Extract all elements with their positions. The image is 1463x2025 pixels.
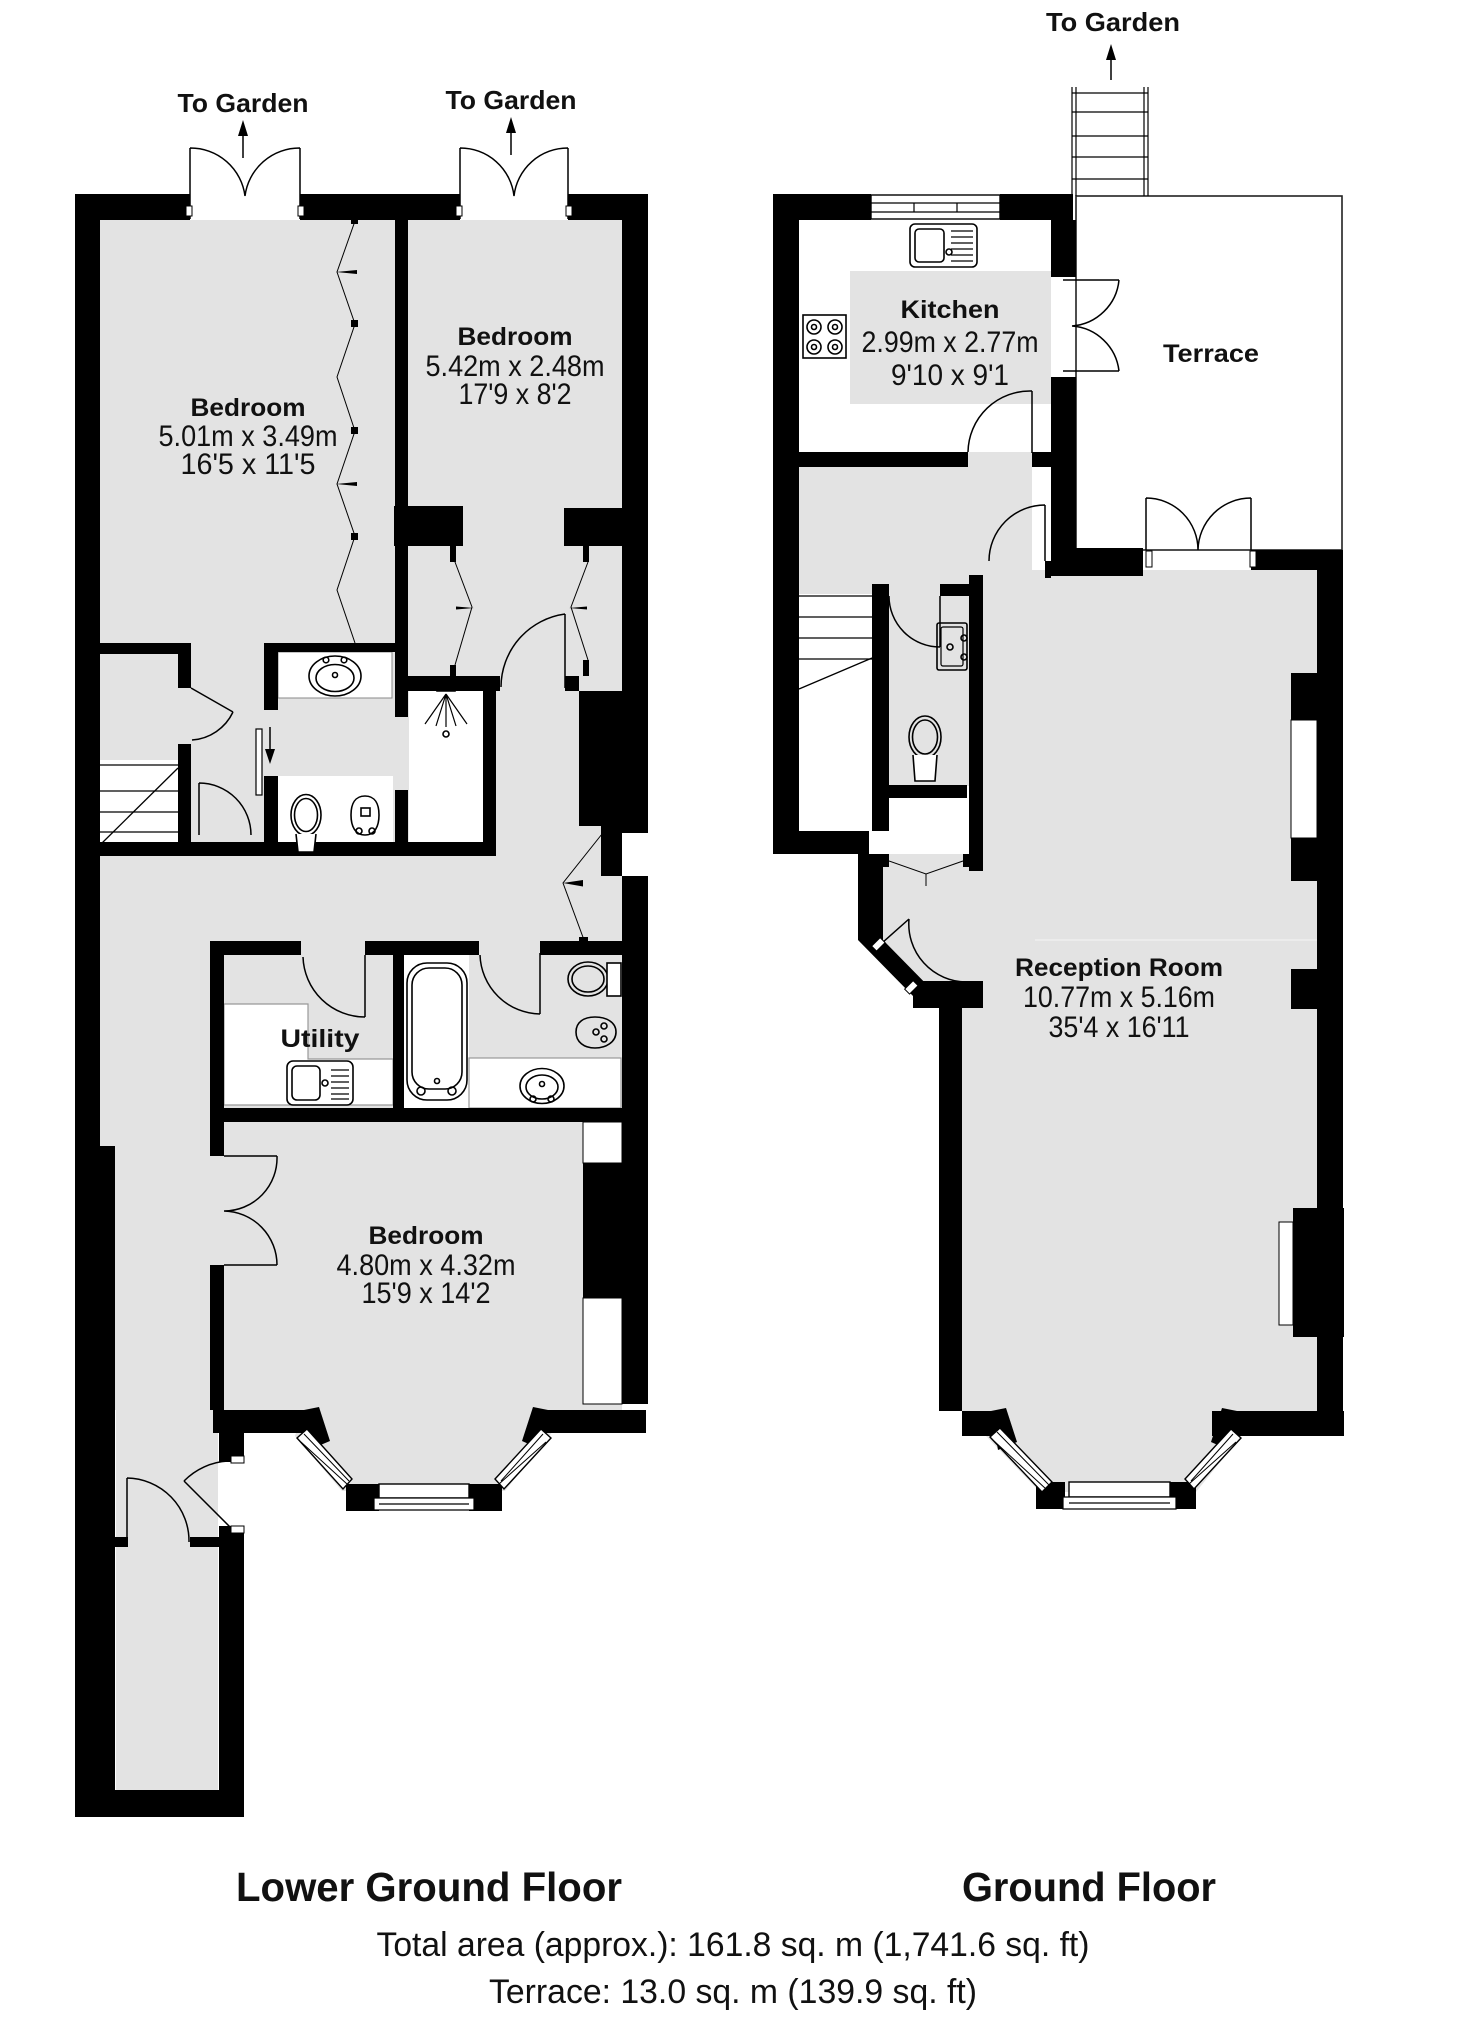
svg-text:Bedroom: Bedroom — [191, 394, 306, 422]
svg-text:Terrace: 13.0 sq. m (139.9 sq.: Terrace: 13.0 sq. m (139.9 sq. ft) — [489, 1973, 977, 2011]
svg-text:To Garden: To Garden — [446, 85, 577, 115]
svg-text:To Garden: To Garden — [178, 88, 309, 118]
svg-text:Ground Floor: Ground Floor — [962, 1864, 1216, 1910]
svg-text:Bedroom: Bedroom — [458, 323, 573, 351]
svg-text:To Garden: To Garden — [1046, 7, 1180, 37]
svg-text:Kitchen: Kitchen — [901, 296, 1000, 324]
svg-text:Reception Room: Reception Room — [1015, 954, 1223, 982]
svg-text:17'9 x 8'2: 17'9 x 8'2 — [459, 378, 572, 411]
svg-text:15'9 x 14'2: 15'9 x 14'2 — [362, 1277, 491, 1310]
svg-text:Bedroom: Bedroom — [369, 1222, 484, 1250]
svg-text:9'10 x 9'1: 9'10 x 9'1 — [891, 359, 1009, 392]
svg-text:2.99m x 2.77m: 2.99m x 2.77m — [862, 326, 1039, 359]
svg-text:Utility: Utility — [281, 1025, 360, 1053]
svg-text:10.77m x 5.16m: 10.77m x 5.16m — [1023, 981, 1215, 1014]
svg-text:35'4 x 16'11: 35'4 x 16'11 — [1049, 1011, 1190, 1044]
svg-text:Lower Ground Floor: Lower Ground Floor — [236, 1864, 622, 1910]
svg-text:Terrace: Terrace — [1163, 340, 1259, 368]
svg-text:Total area (approx.): 161.8 sq: Total area (approx.): 161.8 sq. m (1,741… — [377, 1926, 1090, 1964]
svg-text:16'5 x 11'5: 16'5 x 11'5 — [181, 448, 316, 481]
